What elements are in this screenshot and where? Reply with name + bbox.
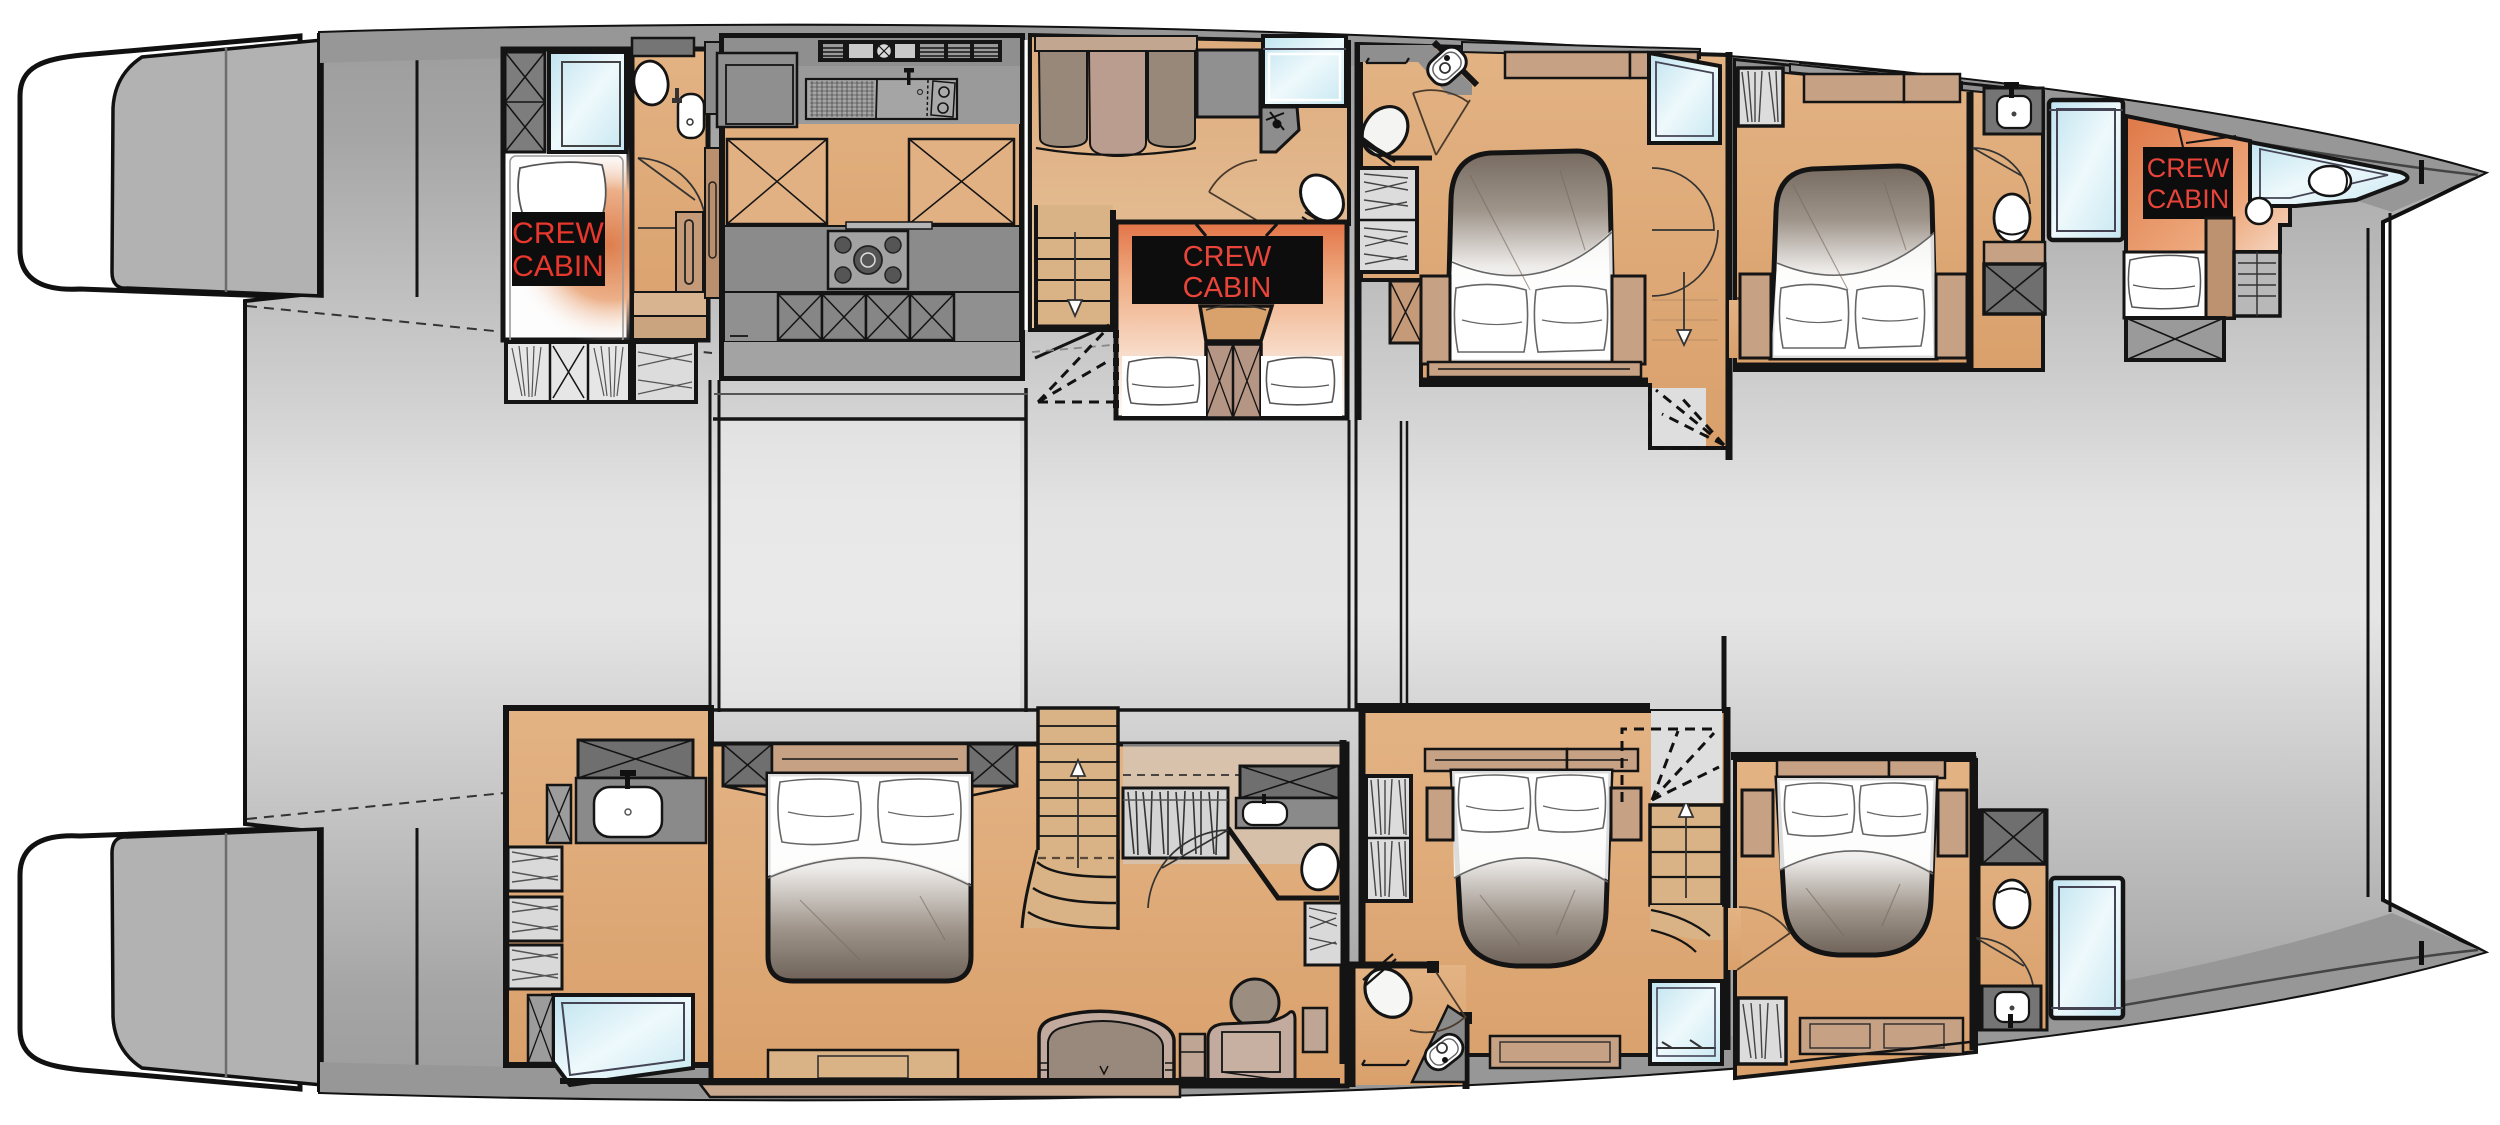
svg-text:CABIN: CABIN	[512, 250, 604, 283]
svg-text:CABIN: CABIN	[2147, 184, 2230, 214]
svg-text:CABIN: CABIN	[1183, 272, 1272, 304]
svg-text:CREW: CREW	[1183, 241, 1272, 273]
svg-text:CREW: CREW	[2147, 153, 2230, 183]
svg-text:CREW: CREW	[512, 217, 604, 250]
